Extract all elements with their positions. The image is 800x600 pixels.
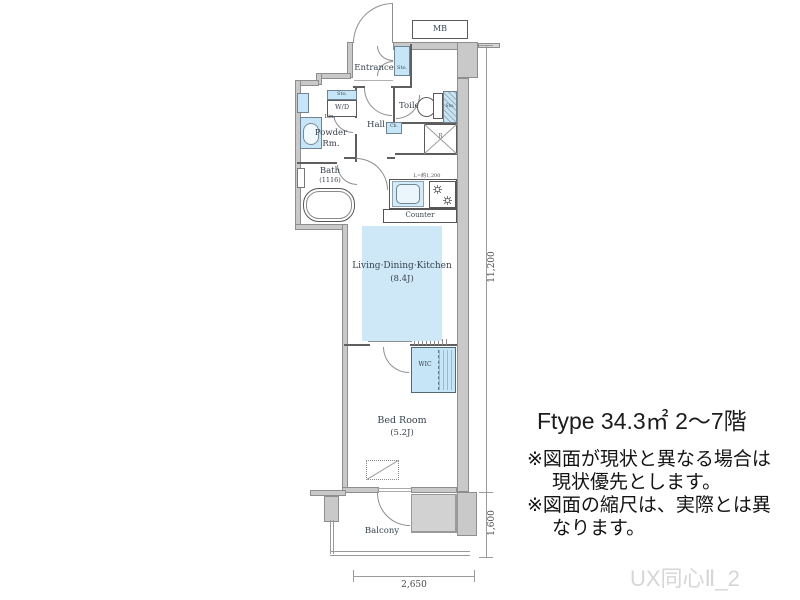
- fridge-label: R: [424, 134, 457, 141]
- balcony-utility-block: [411, 494, 458, 533]
- wall-segment: [318, 73, 351, 79]
- wall-segment: [295, 224, 347, 230]
- wall-segment: [387, 157, 395, 159]
- hall-cabinet-label: Cb.: [386, 125, 402, 130]
- unit-title: Ftype 34.3㎡ 2〜7階: [537, 402, 747, 436]
- wall-segment: [344, 344, 370, 346]
- wall-segment: [342, 487, 379, 493]
- wall-segment: [410, 44, 412, 86]
- bath-label: Bath: [308, 167, 352, 176]
- sliding-door-line: [368, 341, 412, 342]
- entrance-step-line: [354, 80, 393, 81]
- powder-room-label2: Rm.: [303, 140, 359, 149]
- balcony-rail: [330, 520, 334, 554]
- counter-label: Counter: [383, 212, 457, 220]
- floor-plan-page: MB Entrance Sto. Hall Cb. Toilet Sto. R: [0, 0, 800, 600]
- wall-segment: [411, 487, 457, 493]
- wd-storage-label: Sto.: [327, 92, 357, 98]
- bedroom-size-label: (5.2J): [347, 429, 457, 438]
- entrance-door-arc: [353, 3, 393, 43]
- toilet-storage-label: Sto.: [443, 105, 457, 110]
- wic-hanger-rail: [438, 350, 453, 390]
- wic-label: WIC: [412, 362, 438, 369]
- bedroom-label: Bed Room: [347, 416, 457, 426]
- balcony-pillar: [324, 496, 339, 522]
- entrance-storage: [394, 46, 410, 76]
- bath-counter-icon: [297, 168, 305, 188]
- bathtub-inner: [306, 191, 352, 219]
- notes-block: ※図面が現状と異なる場合は 現状優先とします。 ※図面の縮尺は、実際とは異 なり…: [527, 448, 771, 540]
- dimension-main-height: 11,200: [487, 247, 497, 287]
- powder-room-label: Powder: [303, 129, 359, 138]
- wall-segment: [297, 162, 337, 164]
- dimension-tick: [353, 570, 354, 582]
- entrance-label: Entrance: [352, 64, 396, 73]
- wall-segment: [457, 78, 469, 492]
- linen-label: Lin.: [320, 114, 340, 120]
- ldk-door-arc: [356, 158, 388, 190]
- wic-door-arc: [383, 347, 409, 373]
- powder-cabinet: [297, 93, 309, 113]
- toilet-tank-icon: [433, 93, 443, 119]
- wd-label: W/D: [327, 104, 357, 111]
- balcony-label: Balcony: [350, 527, 414, 536]
- burner-icon: [433, 185, 442, 194]
- note-line: ※図面が現状と異なる場合は: [527, 448, 771, 471]
- entrance-storage-label: Sto.: [394, 66, 410, 72]
- dimension-tick: [479, 557, 493, 558]
- hall-door-arc: [364, 88, 392, 116]
- ldk-label: Living·Dining·Kitchen: [347, 262, 457, 272]
- note-line: ※図面の縮尺は、実際とは異: [527, 494, 771, 517]
- window-line: [377, 491, 411, 492]
- kitchen-sink-icon: [396, 184, 420, 204]
- note-line: なります。: [527, 517, 771, 540]
- entrance-closet-door-arc: [377, 46, 393, 61]
- ldk-size-label: (8.4J): [347, 275, 457, 284]
- dimension-line: [353, 576, 475, 577]
- dimension-balcony-height: 1,600: [487, 503, 497, 543]
- balcony-door-arc: [377, 493, 410, 526]
- dimension-tick: [479, 45, 493, 46]
- note-line: 現状優先とします。: [527, 471, 771, 494]
- balcony-rail: [330, 551, 470, 556]
- watermark: UX同心Ⅱ_2: [630, 561, 740, 593]
- kitchen-length-label: L=約1,200: [396, 172, 458, 179]
- meter-box-label: MB: [412, 25, 468, 34]
- furniture-diagonal: [366, 460, 399, 480]
- corridor-block: [457, 42, 478, 78]
- bath-size-label: (1116): [308, 177, 352, 184]
- window-line: [377, 488, 411, 489]
- burner-icon: [443, 196, 452, 205]
- dimension-bottom-width: 2,650: [383, 580, 445, 590]
- entrance-door-leaf: [392, 3, 393, 43]
- dimension-tick: [474, 570, 475, 582]
- balcony-wall: [457, 492, 477, 536]
